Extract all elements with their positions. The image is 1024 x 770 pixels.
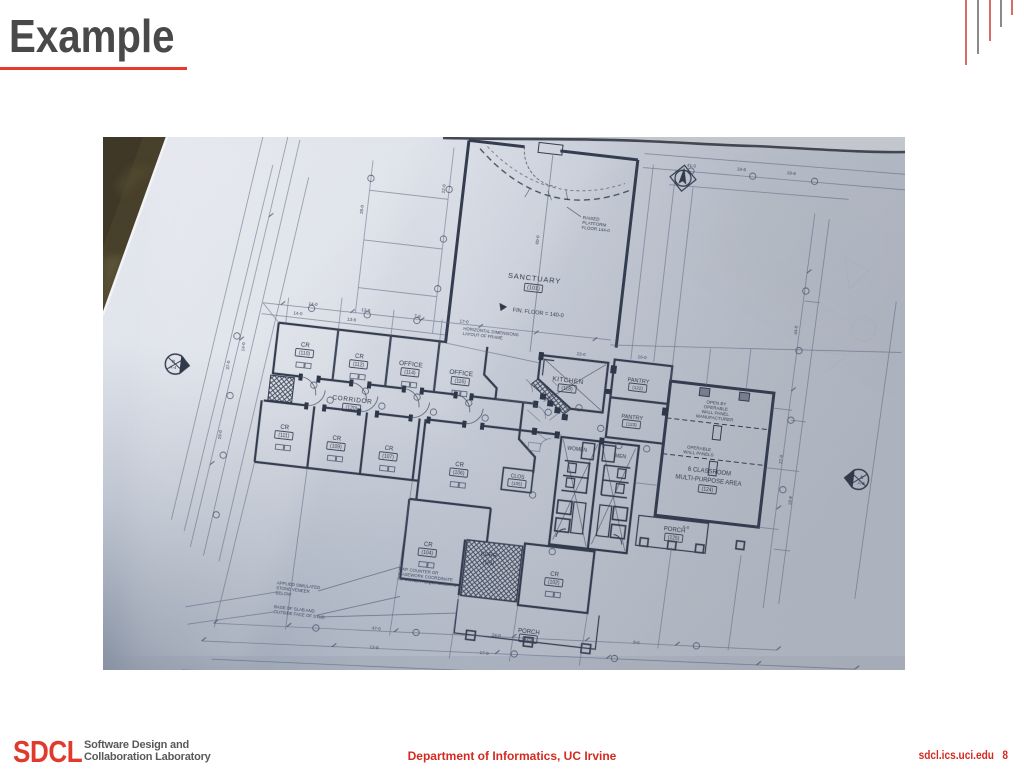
svg-text:7-8: 7-8 xyxy=(414,313,422,319)
svg-text:9-0: 9-0 xyxy=(633,640,641,646)
svg-text:CR: CR xyxy=(384,446,394,453)
svg-text:6-0: 6-0 xyxy=(682,524,690,530)
svg-text:A-3: A-3 xyxy=(857,480,865,486)
svg-text:CR: CR xyxy=(301,342,311,349)
svg-text:B: B xyxy=(860,475,864,480)
svg-text:CR: CR xyxy=(280,425,290,432)
svg-text:CR: CR xyxy=(455,462,465,469)
svg-text:A-4: A-4 xyxy=(169,364,177,370)
svg-text:CR: CR xyxy=(355,354,365,361)
svg-text:CR: CR xyxy=(550,572,560,579)
svg-text:B: B xyxy=(172,359,176,364)
svg-text:CR: CR xyxy=(332,436,342,443)
svg-text:CR: CR xyxy=(423,542,433,549)
